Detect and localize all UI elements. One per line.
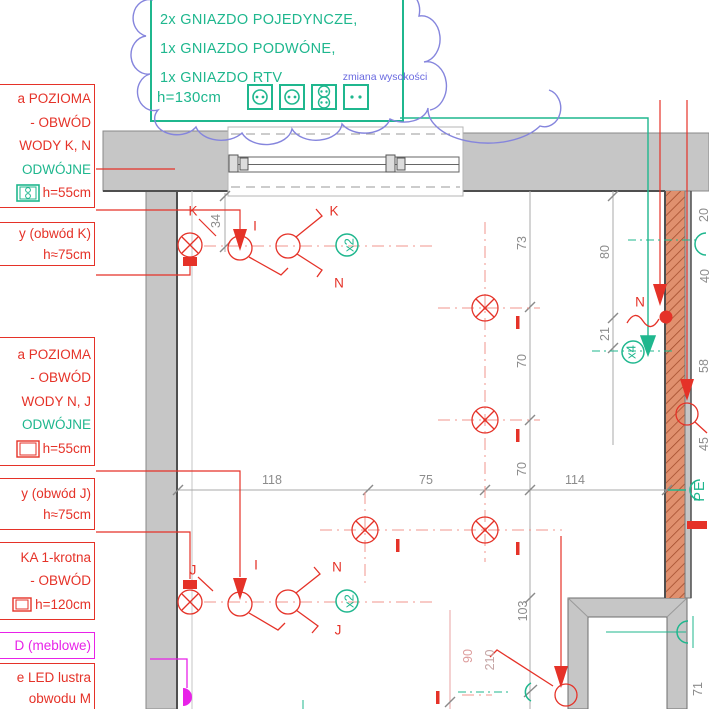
mark-J-wall-lamp: J — [190, 563, 197, 577]
window-mullion — [386, 155, 395, 172]
dim-75: 75 — [419, 474, 433, 487]
dim-ticks — [173, 191, 672, 707]
dim-118: 118 — [262, 474, 282, 487]
legend-line: a POZIOMA — [17, 343, 91, 367]
legend-line: ODWÓJNE — [22, 413, 91, 437]
wall-socket-mark — [687, 521, 707, 529]
legend-height: h=55cm — [43, 437, 91, 461]
mark-K-switch: K — [329, 204, 338, 218]
wall-point-arc — [695, 233, 706, 255]
wall-top-right — [463, 133, 709, 191]
dim-21: 21 — [599, 327, 612, 341]
dim-70b: 70 — [516, 462, 529, 476]
dim-34: 34 — [210, 214, 223, 228]
dim-73: 73 — [516, 236, 529, 250]
wall-lamp-J — [178, 580, 202, 614]
electrical-floor-plan: RAMKA 4-krotna, POZIOMA 2x GNIAZDO POJED… — [0, 0, 709, 709]
switch-KN-top — [276, 209, 322, 277]
legend-box-led-furniture: D (meblowe) — [0, 632, 95, 659]
switch-I-top — [228, 236, 288, 275]
mark-N-switch: N — [334, 276, 344, 290]
dim-90: 90 — [462, 649, 475, 663]
dim-58: 58 — [698, 359, 709, 373]
mark-x4: x4 — [625, 345, 638, 359]
dim-80: 80 — [599, 245, 612, 259]
legend-line: a POZIOMA — [17, 87, 91, 111]
teal-cable-lines — [303, 118, 700, 709]
mark-PE: PE — [693, 480, 708, 501]
cable-arrow-down — [233, 229, 247, 251]
dim-114: 114 — [565, 474, 585, 487]
dim-103: 103 — [517, 601, 530, 622]
dim-210: 210 — [484, 650, 497, 671]
mark-x2-bottom: x2 — [343, 594, 356, 608]
height-change-note: zmiana wysokości — [343, 72, 428, 83]
legend-height: h=55cm — [43, 181, 91, 205]
mark-J-switch: J — [335, 623, 342, 637]
dim-71: 71 — [692, 682, 705, 696]
legend-line: WODY N, J — [21, 390, 91, 414]
dim-40: 40 — [699, 269, 709, 283]
connection-dot — [660, 311, 673, 324]
wall-lamp-K — [178, 233, 202, 266]
legend-line: - OBWÓD — [30, 366, 91, 390]
legend-line: ODWÓJNE — [22, 158, 91, 182]
dim-20: 20 — [698, 208, 709, 222]
legend-box-circuit-K: y (obwód K) h≈75cm — [0, 222, 95, 266]
red-axis-lines — [204, 222, 562, 695]
socket-double-icon — [16, 440, 40, 458]
mark-I-bottom: I — [254, 558, 258, 572]
mark-x2-top: x2 — [343, 238, 356, 252]
window — [228, 127, 463, 196]
flex-connection-squiggle — [627, 315, 659, 326]
window-mullion — [229, 155, 238, 172]
wall-top-left — [103, 131, 228, 191]
legend-line: - OBWÓD — [30, 569, 91, 593]
red-symbols — [178, 209, 707, 706]
legend-height-row: h=55cm — [16, 181, 91, 205]
legend-line: h≈75cm — [43, 504, 91, 525]
dim-45: 45 — [698, 437, 709, 451]
window-mullion — [397, 158, 405, 170]
legend-line: y (obwód J) — [21, 483, 91, 504]
legend-box-sockets-NJ: a POZIOMA - OBWÓD WODY N, J ODWÓJNE h=55… — [0, 337, 95, 466]
legend-line: KA 1-krotna — [20, 546, 91, 570]
legend-box-frame-single: KA 1-krotna - OBWÓD h=120cm — [0, 542, 95, 620]
wall-left — [146, 191, 177, 709]
legend-line: obwodu M — [29, 688, 91, 709]
mark-N-right: N — [635, 295, 645, 309]
legend-line: e LED lustra — [17, 667, 91, 688]
legend-box-sockets-KN: a POZIOMA - OBWÓD WODY K, N ODWÓJNE h=55… — [0, 84, 95, 208]
mark-N-switch2: N — [332, 560, 342, 574]
legend-line: h≈75cm — [43, 244, 91, 265]
mark-I-top: I — [253, 219, 257, 233]
led-strip-mark — [183, 688, 192, 706]
legend-height: h=120cm — [35, 593, 91, 617]
legend-box-led-mirror: e LED lustra obwodu M — [0, 663, 95, 709]
mark-K-wall-lamp: K — [188, 204, 197, 218]
switch-NJ-bottom — [276, 567, 320, 633]
legend-line: WODY K, N — [19, 134, 91, 158]
dimension-lines — [173, 191, 686, 709]
legend-line: y (obwód K) — [19, 223, 91, 244]
window-mullion — [240, 158, 248, 170]
teal-arrow-down — [641, 336, 655, 355]
legend-line: - OBWÓD — [30, 111, 91, 135]
legend-line: D (meblowe) — [14, 638, 91, 653]
legend-height-row: h=120cm — [12, 593, 91, 617]
legend-height-row: h=55cm — [16, 437, 91, 461]
socket-icon — [12, 597, 32, 612]
cable-arrow-down — [233, 578, 247, 600]
circuit-ticks — [396, 316, 520, 704]
legend-box-circuit-J: y (obwód J) h≈75cm — [0, 478, 95, 530]
dim-70a: 70 — [516, 354, 529, 368]
socket-double-icon — [16, 184, 40, 202]
